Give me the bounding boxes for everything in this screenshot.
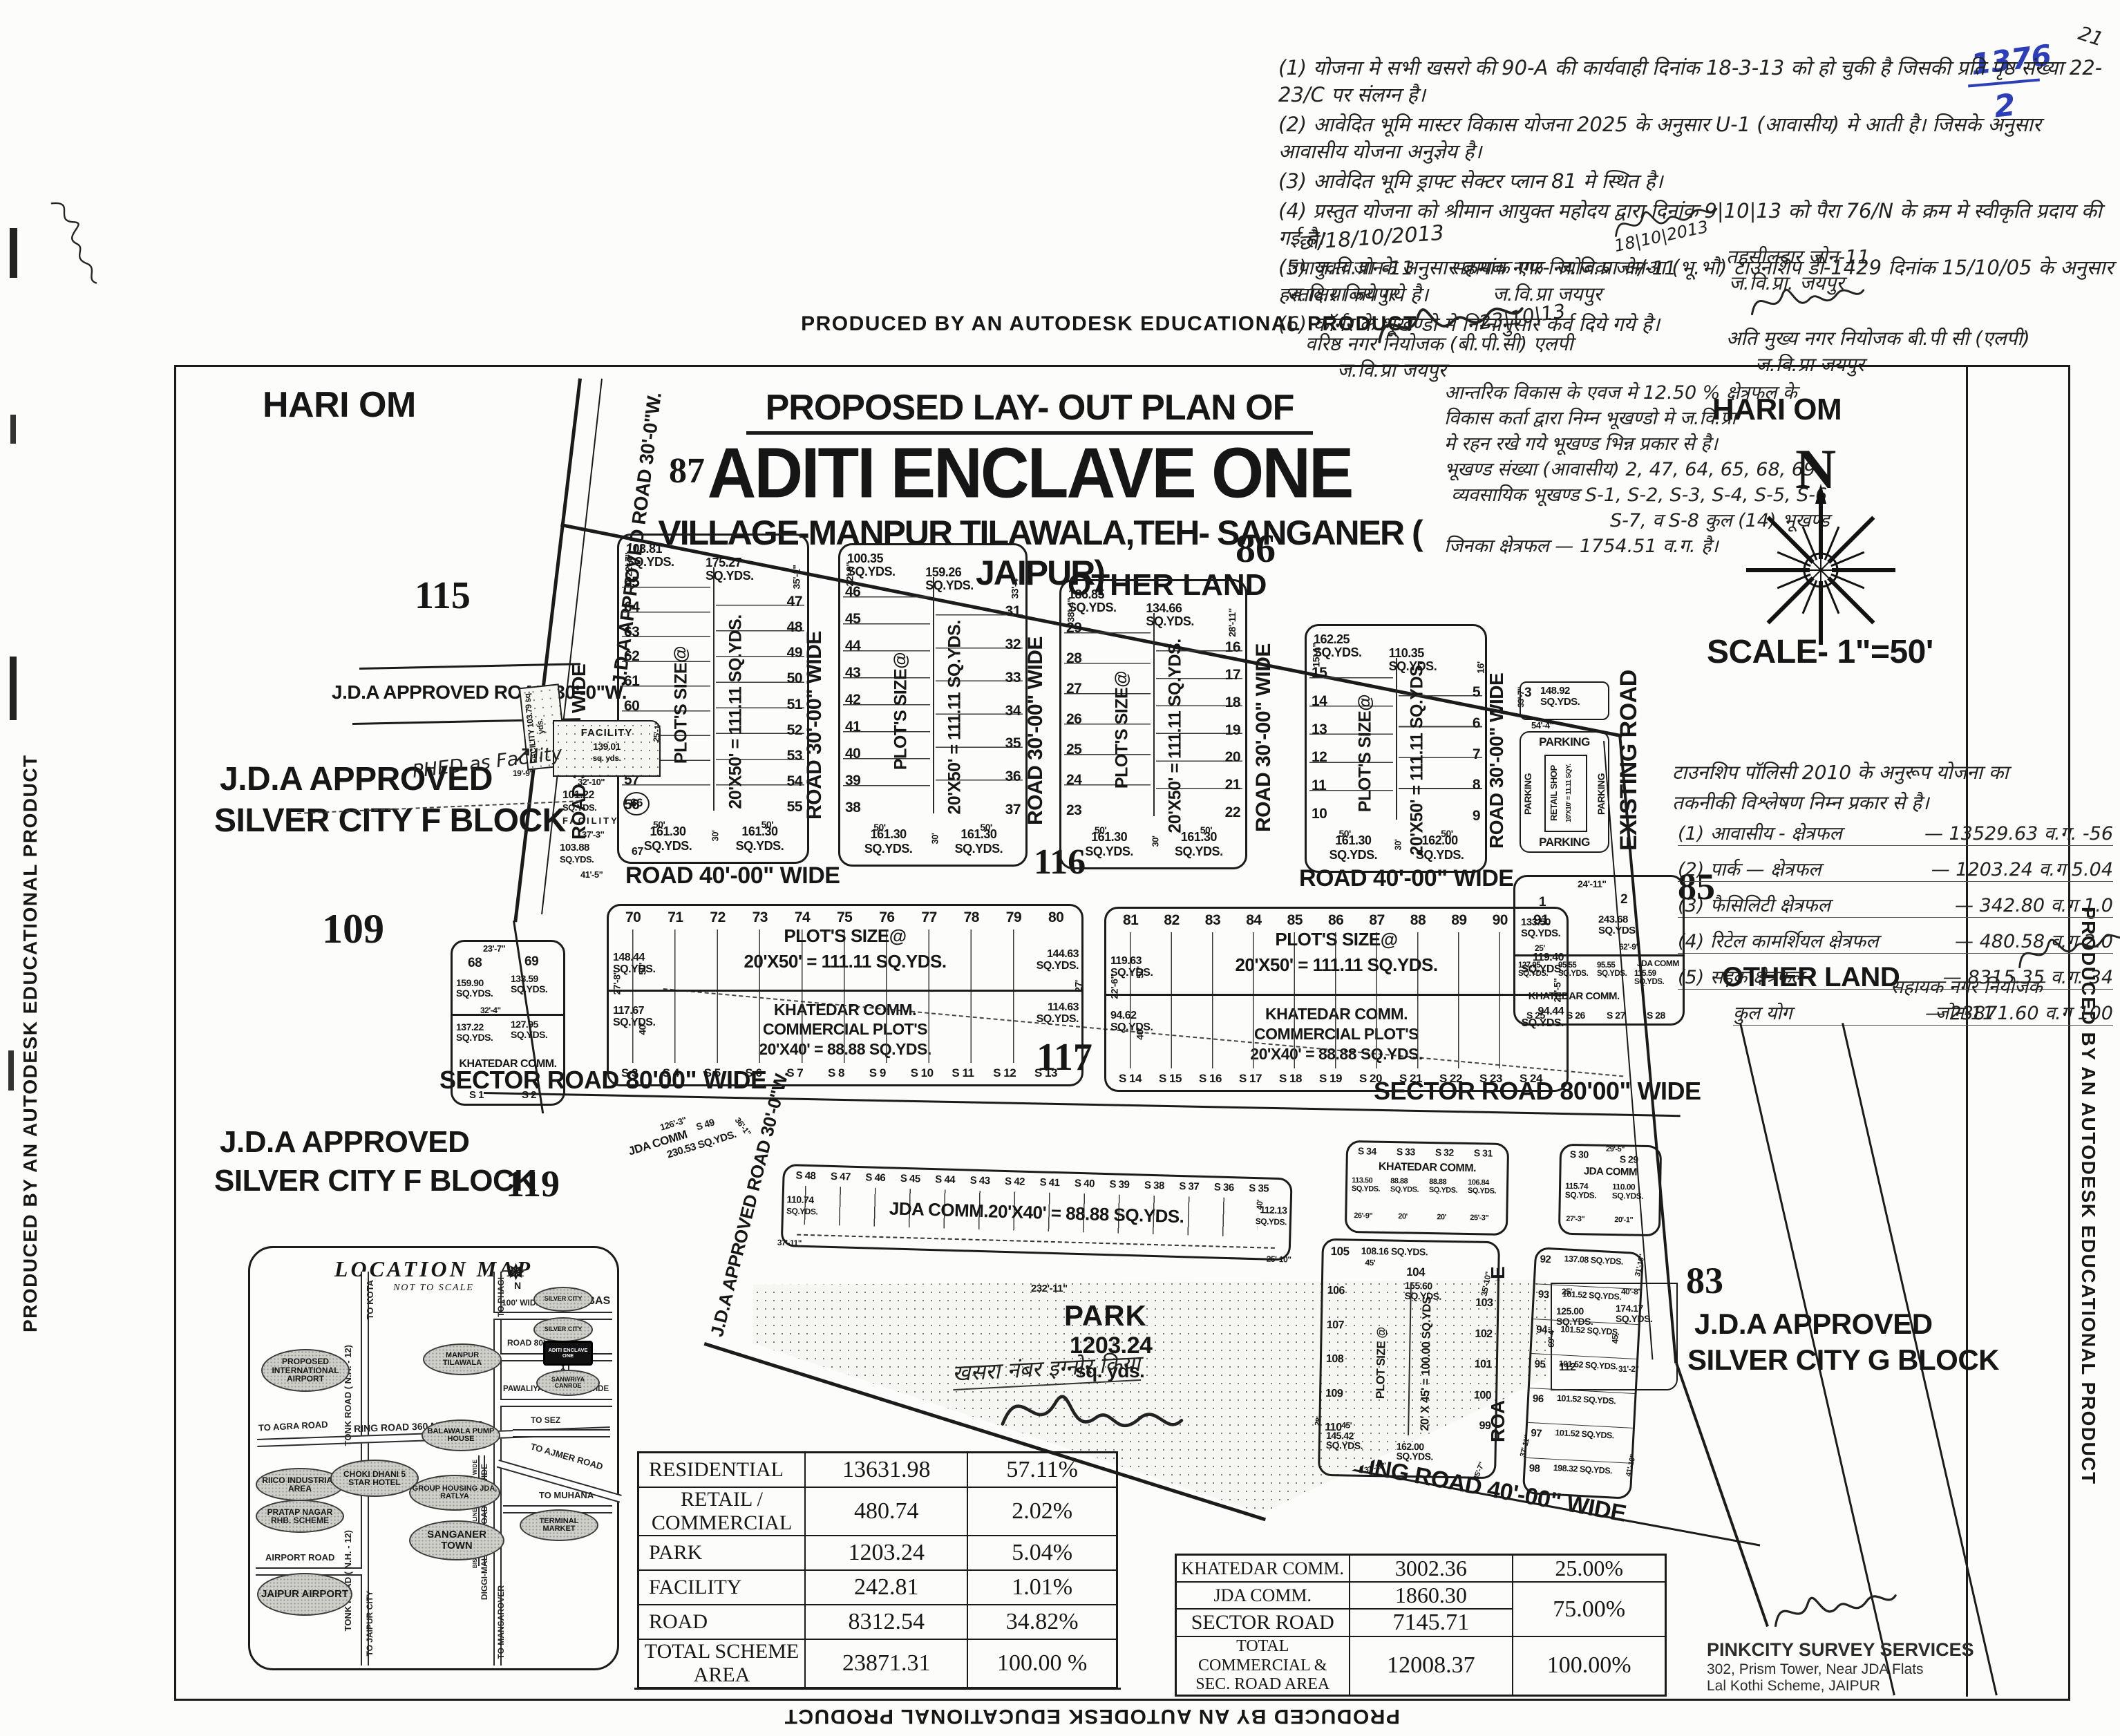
dim-label: 22'-7" [623, 553, 634, 577]
jda-comm-label: JDA COMM [1637, 959, 1679, 968]
signature-mid [1580, 189, 1750, 251]
dim-label: 38'-4" [1066, 598, 1077, 623]
plot-number: 84 [1246, 912, 1261, 929]
block-divider [1515, 954, 1683, 956]
plot-number: 42 [845, 692, 860, 708]
plot-area-label: 161.30 SQ.YDS. [717, 824, 803, 853]
dim-label: 28'-11" [1227, 608, 1238, 637]
dim-label: 30' [1150, 836, 1160, 847]
plot-area-label: 101.22 [562, 789, 594, 802]
plot-area-label: 161.30 SQ.YDS. [846, 827, 931, 856]
plot-number: 109 [1325, 1387, 1343, 1399]
t1-label: ROAD [638, 1605, 806, 1639]
plot-number: 54 [787, 773, 802, 790]
plot-number: 103 [1475, 1297, 1493, 1310]
plot-number: 68 [468, 956, 482, 971]
plot-number: 90 [1493, 912, 1508, 929]
plot-area-label: SQ.YDS. [562, 802, 596, 813]
sector-road-line [484, 1092, 1681, 1117]
t2-pct: 75.00% [1513, 1582, 1665, 1636]
plot-area-label: 162.00 SQ.YDS. [1399, 833, 1481, 862]
plot-number: 80 [1048, 909, 1063, 926]
dim-label: 50' [761, 819, 773, 830]
commercial-plot-number: S 11 [952, 1066, 974, 1080]
plot-number: 8 [1473, 777, 1480, 793]
dim-label: 50' [1441, 828, 1452, 839]
map-place: CHOKI DHANI 5 STAR HOTEL [330, 1460, 419, 1497]
park-label: PARK [1064, 1299, 1147, 1332]
plot-strip: 2928272625242316171819202122PLOT'S SIZE@… [1059, 579, 1247, 869]
jda-comm-label: JDA COMM [1561, 1165, 1659, 1178]
t1-value: 23871.31 [805, 1639, 967, 1688]
plot-number: 49 [787, 645, 802, 661]
plot-area-label: 159.26 SQ.YDS. [925, 566, 1011, 592]
plot-strip: 46454443424140393831323334353637PLOT'S S… [838, 543, 1028, 867]
plot-size-label: PLOT'S SIZE@ [1112, 671, 1132, 789]
map-north-letter: N [514, 1280, 521, 1291]
parking-label: PARKING [1521, 836, 1608, 849]
commercial-plot-number: S 23 [1479, 1072, 1502, 1086]
plot-number: 72 [710, 909, 725, 926]
plot-number: 98 [1529, 1462, 1540, 1475]
plot-number: 95 [1534, 1358, 1546, 1370]
plot-number: 6 [1473, 715, 1480, 732]
t1-label: PARK [638, 1536, 806, 1570]
plot-number: 53 [787, 748, 802, 764]
plot-number: 27 [1066, 681, 1081, 697]
area-label: 101.52 SQ.YDS. [1560, 1325, 1633, 1338]
jda-comm-strip: S 48S 47S 46S 45S 44S 43S 42S 41S 40S 39… [781, 1164, 1293, 1261]
map-place: SANGANER TOWN [409, 1520, 504, 1560]
commercial-plot-number: S 10 [911, 1066, 934, 1080]
commercial-plot-number: S 33 [1397, 1146, 1415, 1157]
plot-number: 22 [1225, 804, 1240, 821]
facility-label: FACILITY [554, 727, 659, 739]
dim-label: 37'-11" [777, 1238, 802, 1248]
dim-label: 25'-1" [652, 721, 663, 743]
plot-number: 63 [624, 624, 639, 641]
plot-number: 5 [1473, 684, 1480, 701]
parking-label: PARKING [1521, 735, 1608, 749]
plot-number: 61 [624, 673, 639, 690]
khatedar-label: KHATEDAR COMM. [453, 1058, 563, 1070]
plot-number: 67 [632, 846, 643, 858]
commercial-plot-number: S 37 [1179, 1180, 1199, 1193]
t2-value: 12008.37 [1350, 1636, 1513, 1695]
commercial-plot-number: S 29 [1620, 1153, 1638, 1164]
block-divider [1106, 994, 1567, 996]
commercial-plot-number: S 8 [828, 1066, 844, 1080]
commercial-plot-number: S 27 [1607, 1010, 1625, 1021]
commercial-plot-number: S 4 [663, 1066, 679, 1080]
commercial-plot-number: S 3 [621, 1066, 638, 1080]
dim-label: 45' [1365, 1258, 1375, 1267]
plot-number: 88 [1410, 912, 1426, 929]
map-road-label: TO AGRA ROAD [258, 1419, 328, 1433]
dim-label: 40' [1255, 1200, 1265, 1210]
commercial-plot-number: S 31 [1474, 1147, 1493, 1158]
plot-number: 86 [1328, 912, 1343, 929]
mid-block-left: 7071727374757677787980PLOT'S SIZE@20'X50… [607, 904, 1083, 1086]
plot-number: 35 [1005, 735, 1021, 752]
br-residential-block: 105108.16 SQ.YDS.45'104155.60 SQ.YDS.35'… [1318, 1238, 1500, 1479]
plot-cell: 97101.52 SQ.YDS. [1526, 1422, 1632, 1463]
dim-label: 20' [1437, 1213, 1446, 1221]
plot-number: 101 [1475, 1359, 1493, 1371]
plot-number: 38 [845, 800, 860, 816]
commercial-plot-number: S 36 [1214, 1181, 1234, 1193]
plot-number: 71 [668, 909, 683, 926]
map-road-label: TO PHAGI [496, 1277, 506, 1317]
br-plot-strip-92-98: 92137.08 SQ.YDS.93101.52 SQ.YDS.94101.52… [1522, 1247, 1645, 1500]
parking-block: PARKINGPARKINGPARKINGPARKINGRETAIL SHOP1… [1520, 731, 1609, 853]
area-label: 137.22 SQ.YDS. [456, 1022, 506, 1042]
commercial-plot-number: S 14 [1119, 1072, 1142, 1086]
plot-number: 79 [1006, 909, 1021, 926]
commercial-plot-number: S 22 [1439, 1072, 1462, 1086]
dim-label: 50' [1200, 824, 1212, 836]
plot-size-label: 20'X50' = 111.11 SQ.YDS. [945, 621, 965, 815]
plot-strip: 15141312111056789PLOT'S SIZE@20'X50' = 1… [1305, 624, 1487, 873]
dim-label: 26'-9" [1354, 1211, 1372, 1220]
dim-label: 41'-5" [580, 869, 603, 880]
plot-number: 73 [753, 909, 768, 926]
facility-plot-66-67: 32'-10"101.22SQ.YDS.66FACILITY37'-3"103.… [557, 777, 661, 919]
plot-number: 16 [1225, 639, 1240, 656]
area-label: 159.90 SQ.YDS. [456, 978, 506, 998]
area-label: 243.68 SQ.YDS. [1598, 914, 1660, 936]
surveyor-addr1: 302, Prism Tower, Near JDA Flats [1707, 1661, 1924, 1678]
area-label: SQ.YDS. [1256, 1216, 1287, 1227]
plot-number: 26 [1066, 711, 1081, 728]
dim-label: 33'-4" [1010, 575, 1021, 599]
plot-number: 18 [1225, 695, 1240, 711]
plot-number: 10 [1312, 806, 1327, 822]
plot-size-label: 20'X50' = 111.11 SQ.YDS. [1235, 954, 1437, 976]
plot-number: 92 [1540, 1254, 1551, 1266]
parking-label: PARKING [1596, 756, 1607, 832]
map-place: MANPUR TILAWALA [423, 1343, 502, 1375]
plot-number: 21 [1225, 777, 1240, 793]
jda-comm-small: 126'-3"JDA COMM230.53 SQ.YDS.S 4936'-1" [619, 1093, 776, 1194]
strip-center-line [933, 577, 934, 813]
plot-number: 34 [1005, 703, 1021, 719]
dim-label: 40' [1135, 1028, 1146, 1039]
facility-area: 139.01 [554, 741, 659, 752]
plot-number: 64 [624, 599, 639, 616]
dim-label: 15'-1" [1311, 643, 1322, 668]
margin-scribble [21, 182, 132, 302]
commercial-plot-number: S 1 [469, 1089, 484, 1101]
dim-label: 27'-8" [612, 971, 623, 995]
plot-number-circled: 66 [623, 792, 650, 815]
plot-number: 29 [1066, 620, 1081, 636]
area-label: 101.52 SQ.YDS. [1558, 1359, 1631, 1372]
commercial-plot-number: S 26 [1567, 1010, 1585, 1021]
t1-value: 8312.54 [805, 1605, 967, 1639]
commercial-plot-number: S 12 [993, 1066, 1016, 1080]
plot-number: 105 [1331, 1245, 1350, 1258]
commercial-plot-number: S 39 [1109, 1178, 1129, 1191]
plot-number: 99 [1479, 1420, 1490, 1433]
dim-label: 40' [637, 1023, 648, 1035]
plot-area-label: 161.30 SQ.YDS. [1067, 830, 1151, 859]
plot-number: 15 [1312, 665, 1327, 681]
dim-label: 33'-7" [1516, 687, 1526, 708]
plot-number: 106 [1327, 1285, 1345, 1297]
dim-label: 30' [1392, 839, 1403, 850]
facility-plot-2: FACILITY139.01sq. yds. [553, 720, 661, 777]
commercial-schedule-table: KHATEDAR COMM. 3002.36 25.00% JDA COMM. … [1175, 1554, 1667, 1697]
area-label: 155.60 SQ.YDS. [1404, 1281, 1466, 1302]
commercial-plot-number: S 18 [1279, 1072, 1302, 1086]
t2-label: SECTOR ROAD [1176, 1609, 1350, 1636]
plot-size-label: PLOT'S SIZE@ [891, 652, 911, 770]
area-label: 101.52 SQ.YDS. [1562, 1290, 1635, 1303]
area-label: 101.52 SQ.YDS. [1555, 1428, 1627, 1442]
boundary-lower-right [1675, 1363, 1769, 1627]
plot-number: 36 [1005, 768, 1021, 785]
map-road-label: TO AJMER ROAD [529, 1441, 604, 1471]
dim-label: 30' [929, 833, 940, 844]
plot-number: 94 [1536, 1323, 1548, 1336]
plot-number: 47 [787, 594, 802, 610]
plot-number: 69 [524, 954, 538, 970]
plot-number: 93 [1537, 1289, 1549, 1301]
plot-number: 7 [1473, 746, 1480, 763]
dim-label: 45' [1341, 1420, 1352, 1430]
plot-number: 78 [964, 909, 979, 926]
commercial-plot-number: S 19 [1319, 1072, 1342, 1086]
map-place: SANWRIYA CANROE [536, 1370, 600, 1396]
dim-label: 50' [1135, 966, 1146, 978]
area-label: 137.08 SQ.YDS. [1564, 1254, 1636, 1267]
t1-pct: 100.00 % [967, 1639, 1117, 1688]
plot-number: 82 [1164, 912, 1179, 929]
br-jda-strip: S 30S 2929'-5"JDA COMM115.74 SQ.YDS.110.… [1558, 1144, 1662, 1237]
plot-number: 107 [1327, 1319, 1345, 1331]
commercial-plot-number: S 21 [1399, 1072, 1422, 1086]
plot-number: 32 [1005, 636, 1021, 653]
t1-value: 480.74 [805, 1487, 967, 1536]
plot-cell: 93101.52 SQ.YDS. [1533, 1283, 1640, 1324]
t2-pct: 100.00% [1513, 1636, 1665, 1695]
plot-number: 74 [795, 909, 810, 926]
signature-tehsildar [1740, 272, 1873, 327]
commercial-plot-number: S 34 [1358, 1145, 1376, 1156]
plot-number: 51 [787, 697, 802, 713]
t1-pct: 34.82% [967, 1605, 1117, 1639]
plot-area-label: 175.27 SQ.YDS. [706, 556, 791, 583]
map-place: BALAWALA PUMP HOUSE [422, 1419, 500, 1451]
dim-label: 27'-3" [1566, 1215, 1584, 1223]
area-label: 110.74 [786, 1193, 813, 1205]
col-lines-lower [1130, 1003, 1540, 1068]
area-label: 127.95 SQ.YDS. [1518, 961, 1557, 978]
area-label: 88.88 SQ.YDS. [1390, 1178, 1426, 1194]
plot-area-label: 148.92 SQ.YDS. [1540, 686, 1605, 708]
area-label: 108.16 SQ.YDS. [1361, 1245, 1428, 1258]
col-lines-lower [632, 999, 1055, 1063]
area-label: 198.32 SQ.YDS. [1553, 1464, 1625, 1477]
khatedar-label: KHATEDAR COMM. [1515, 990, 1632, 1002]
plot-cell: 96101.52 SQ.YDS. [1528, 1388, 1634, 1428]
commercial-plot-number: S 46 [865, 1171, 885, 1184]
plot-area-label: 100.35 SQ.YDS. [847, 552, 925, 578]
map-place: RIICO INDUSTRIAL AREA [256, 1468, 344, 1501]
plot-number: 40 [845, 746, 860, 762]
plot-size-label: PLOT'S SIZE@ [1356, 695, 1376, 812]
dim-label: 24'-11" [1578, 878, 1607, 889]
plot-area-label: 134.66 SQ.YDS. [1146, 602, 1231, 628]
plot-area-label: 162.25 SQ.YDS. [1314, 633, 1391, 659]
plot-number: 48 [787, 619, 802, 636]
commercial-plot-number: S 43 [969, 1175, 990, 1187]
t2-pct: 25.00% [1513, 1555, 1665, 1583]
plot-number: 52 [787, 722, 802, 739]
signature-policy-officer [2001, 914, 2120, 981]
map-road-label: TO SEZ [531, 1415, 560, 1425]
plot-size-label: PLOT'S SIZE@ [784, 925, 906, 947]
commercial-plot-number: S 15 [1159, 1072, 1182, 1086]
dim-label: 20' [1398, 1212, 1408, 1220]
area-label: 144.63 SQ.YDS. [1015, 949, 1079, 972]
plot-number: 87 [1369, 912, 1384, 929]
plot-number: 14 [1312, 693, 1327, 710]
signature-surveyor [1767, 1574, 1902, 1641]
plot-number: 83 [1205, 912, 1220, 929]
dim-label: 32'-4" [480, 1006, 501, 1015]
block-divider [453, 1014, 563, 1016]
survey-dash-1 [297, 800, 580, 814]
map-site-marker: ADITI ENCLAVE ONE [543, 1341, 593, 1366]
plot-size-label: 20'X50' = 111.11 SQ.YDS. [1165, 639, 1185, 833]
dim-label: 25'-3" [1470, 1214, 1488, 1222]
t1-pct: 5.04% [967, 1536, 1117, 1570]
plot-number: 25 [1066, 742, 1081, 758]
plot-number: 43 [845, 665, 860, 681]
plot-number: 39 [845, 773, 860, 789]
dim-label: 23'-7" [483, 943, 505, 954]
plot-number: 24 [1066, 772, 1081, 789]
commercial-plot-number: S 5 [704, 1066, 721, 1080]
map-place: PRATAP NAGAR RHB. SCHEME [256, 1500, 344, 1533]
plot-number: 100 [1474, 1389, 1492, 1402]
plot-number: 102 [1475, 1328, 1493, 1340]
area-label: 162.00 SQ.YDS. [1396, 1441, 1458, 1462]
plot-size-label: PLOT SIZE @ [1374, 1327, 1389, 1399]
commercial-plot-number: S 20 [1359, 1072, 1382, 1086]
plot-cell: 92137.08 SQ.YDS. [1535, 1249, 1642, 1289]
area-label: 127.95 SQ.YDS. [511, 1019, 560, 1039]
t1-pct: 2.02% [967, 1487, 1117, 1536]
dim-label: 32'-10" [578, 777, 605, 787]
strip-center-line [1408, 1283, 1412, 1435]
area-label: 95.55 SQ.YDS. [1597, 961, 1636, 978]
map-road-label: TONK ROAD ( N.H. - 12) [343, 1530, 353, 1631]
plot-number: 11 [1312, 777, 1326, 794]
t1-label: RESIDENTIAL [638, 1453, 806, 1487]
area-label: 88.88 SQ.YDS. [1429, 1178, 1465, 1195]
commercial-plot-number: S 6 [745, 1066, 761, 1080]
plot-number: 2 [1620, 892, 1627, 907]
commercial-plot-number: S 49 [694, 1116, 715, 1132]
t2-value: 3002.36 [1350, 1555, 1513, 1583]
khatedar-label: KHATEDAR COMM. [1347, 1160, 1506, 1176]
plot-number: 19 [1225, 722, 1240, 739]
map-place: JAIPUR AIRPORT [257, 1573, 352, 1616]
plot-number: 1 [1539, 895, 1546, 910]
plot-number: 13 [1312, 721, 1327, 738]
dim-label: 35'-1" [791, 565, 802, 589]
area-label: 133.50 SQ.YDS. [1521, 917, 1575, 939]
commercial-plot-number: S 41 [1039, 1176, 1059, 1189]
commercial-plot-number: S 9 [869, 1066, 886, 1080]
map-place: TERMINAL MARKET [520, 1509, 598, 1541]
area-label: 113.50 SQ.YDS. [1352, 1177, 1388, 1193]
map-road-label: TO KOTA [365, 1280, 375, 1319]
dim-label: 16' [1475, 661, 1486, 673]
strip-center-line [1396, 658, 1397, 820]
dim-label: 37'-3" [582, 829, 604, 840]
t1-pct: 1.01% [967, 1570, 1117, 1605]
strip-center-line [713, 567, 714, 811]
map-road [500, 1399, 612, 1407]
map-road [513, 1429, 610, 1437]
area-schedule-table: RESIDENTIAL 13631.98 57.11% RETAIL / COM… [637, 1451, 1118, 1689]
dim-label: 29'-5" [1606, 1145, 1625, 1153]
plot-cell: 98198.32 SQ.YDS. [1524, 1457, 1631, 1498]
scanned-layout-plan-sheet: PRODUCED BY AN AUTODESK EDUCATIONAL PROD… [0, 0, 2120, 1736]
dim-label: 50' [980, 822, 992, 833]
plot-number: 81 [1123, 912, 1138, 929]
dim-label: 35'-7" [1472, 1461, 1486, 1481]
plot-area-label: 161.30 SQ.YDS. [1312, 833, 1394, 862]
commercial-plot-number: S 32 [1435, 1147, 1454, 1158]
dim-label: 50' [637, 963, 648, 974]
plot-number: 60 [624, 698, 639, 715]
dashed-inner [797, 1234, 1275, 1249]
commercial-plot-number: S 25 [1526, 1010, 1545, 1021]
map-place: SILVER CITY [533, 1287, 593, 1312]
t1-label: FACILITY [638, 1570, 806, 1605]
map-place: GROUP HOUSING JDA, RATLYA [409, 1475, 500, 1511]
plot-number: 41 [845, 719, 860, 735]
strip-center-line [1153, 613, 1155, 816]
plot-size-label: PLOT'S SIZE@ [671, 646, 691, 764]
block-divider [609, 990, 1081, 992]
map-place: SILVER CITY [533, 1317, 593, 1342]
plot-cell: 94101.52 SQ.YDS. [1531, 1319, 1638, 1359]
commercial-plot-number: S 16 [1199, 1072, 1222, 1086]
plot-number: 12 [1312, 749, 1327, 766]
plot-number: 17 [1225, 667, 1240, 683]
dim-label: 31'-10" [1363, 1462, 1387, 1475]
khatedar-block-left: 23'-7"6869159.90 SQ.YDS.133.59 SQ.YDS.13… [451, 940, 565, 1106]
plot-number: 46 [845, 584, 860, 601]
facility-area-unit: sq. yds. [554, 753, 659, 763]
plot-number: 104 [1406, 1265, 1425, 1279]
plot-size-label: 20' X 45' = 100.00 SQ.YDS [1418, 1296, 1434, 1431]
phed-arrow: ↗ [513, 741, 533, 768]
commercial-plot-number: S 42 [1005, 1176, 1025, 1188]
plot-area-label: 186.85 SQ.YDS. [1068, 588, 1146, 614]
map-road-label: TO MUHANA [539, 1490, 594, 1500]
plot-size-label: 20'X50' = 111.11 SQ.YDS. [1407, 661, 1427, 855]
parking-label: PARKING [1522, 756, 1533, 832]
t2-label: KHATEDAR COMM. [1176, 1555, 1350, 1583]
plot-number: 70 [625, 909, 641, 926]
